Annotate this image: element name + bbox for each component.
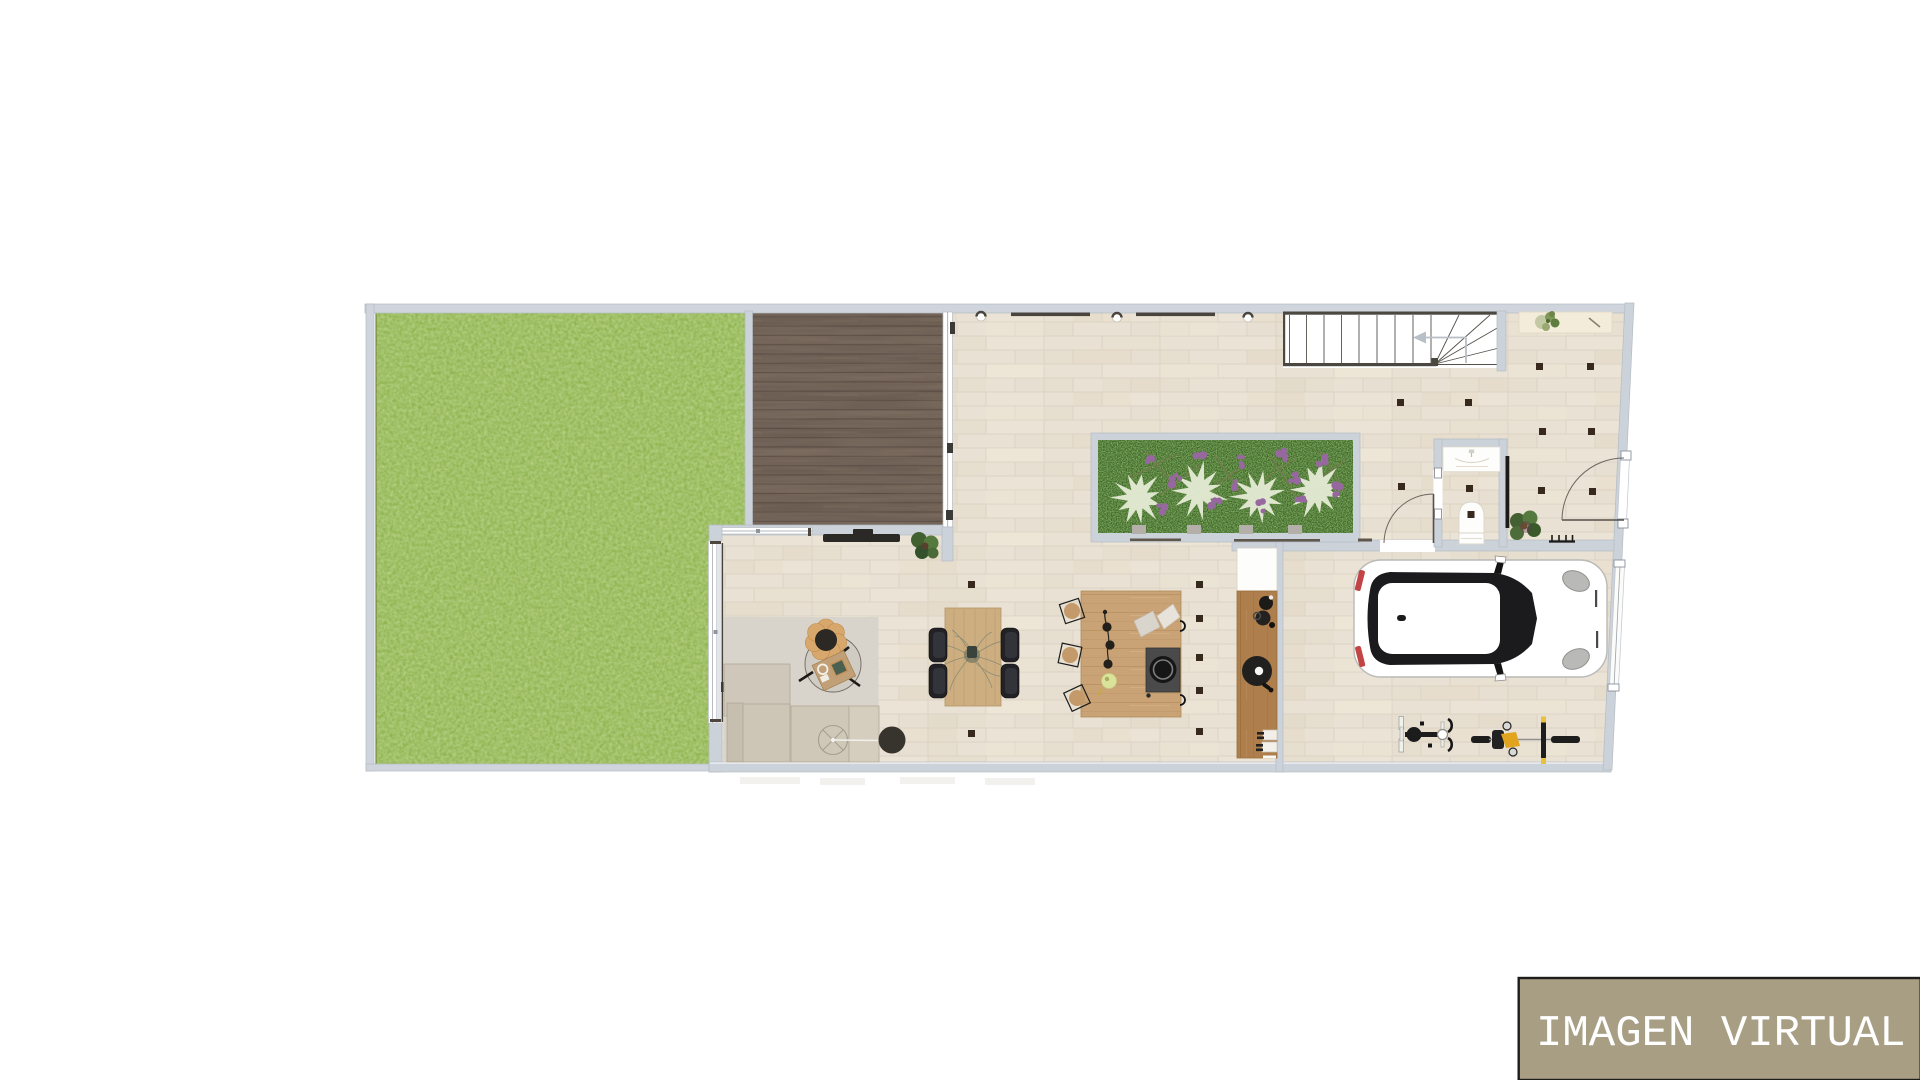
svg-text:IMAGEN VIRTUAL: IMAGEN VIRTUAL [1536,1009,1906,1059]
